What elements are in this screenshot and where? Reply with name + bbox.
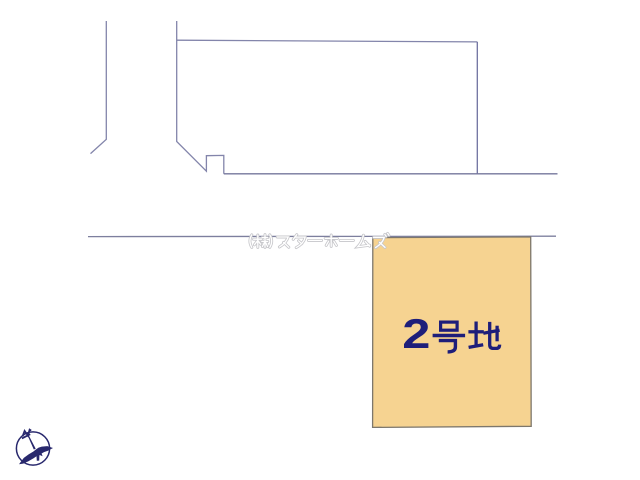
svg-text:2: 2 <box>402 310 430 357</box>
